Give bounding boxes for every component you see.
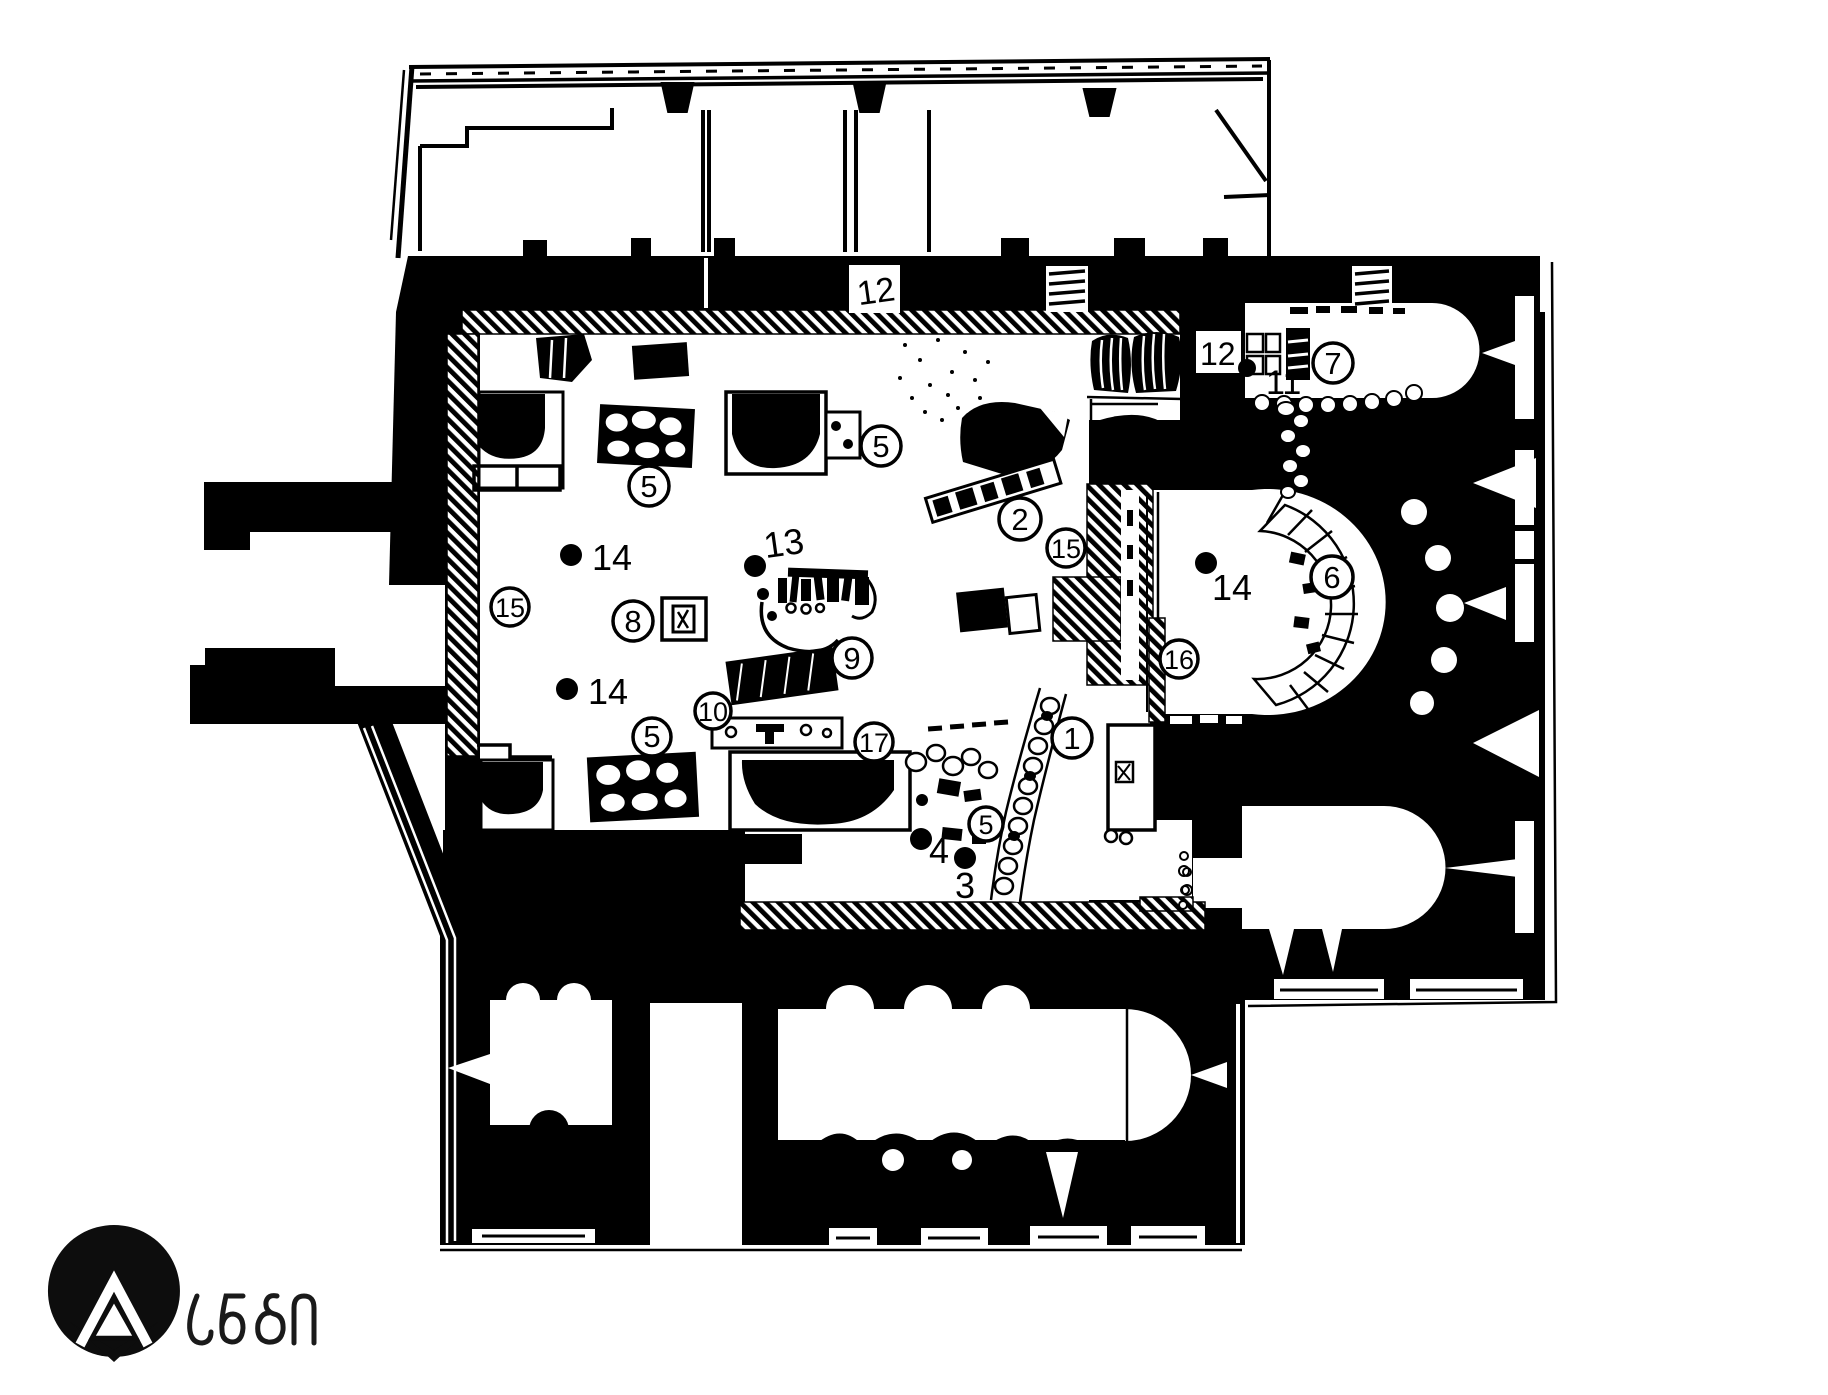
svg-text:9: 9 bbox=[843, 641, 860, 676]
svg-text:1: 1 bbox=[1063, 721, 1080, 756]
svg-text:15: 15 bbox=[1051, 534, 1081, 564]
svg-text:17: 17 bbox=[859, 728, 889, 758]
svg-text:5: 5 bbox=[872, 429, 889, 464]
svg-text:16: 16 bbox=[1164, 645, 1194, 675]
svg-text:14: 14 bbox=[592, 537, 632, 578]
svg-text:4: 4 bbox=[929, 830, 949, 871]
svg-text:5: 5 bbox=[978, 810, 993, 840]
svg-text:3: 3 bbox=[955, 865, 975, 906]
svg-text:10: 10 bbox=[698, 697, 728, 727]
svg-text:2: 2 bbox=[1011, 502, 1028, 537]
svg-text:13: 13 bbox=[761, 520, 806, 566]
svg-text:11: 11 bbox=[1266, 364, 1301, 402]
svg-text:7: 7 bbox=[1324, 346, 1341, 381]
svg-text:6: 6 bbox=[1323, 560, 1340, 595]
svg-text:5: 5 bbox=[643, 719, 660, 754]
svg-text:12: 12 bbox=[1200, 336, 1236, 372]
svg-text:8: 8 bbox=[624, 604, 641, 639]
svg-text:5: 5 bbox=[640, 469, 657, 504]
svg-text:15: 15 bbox=[495, 593, 525, 623]
svg-text:14: 14 bbox=[1212, 567, 1252, 608]
svg-text:12: 12 bbox=[855, 270, 898, 313]
svg-text:14: 14 bbox=[588, 671, 628, 712]
